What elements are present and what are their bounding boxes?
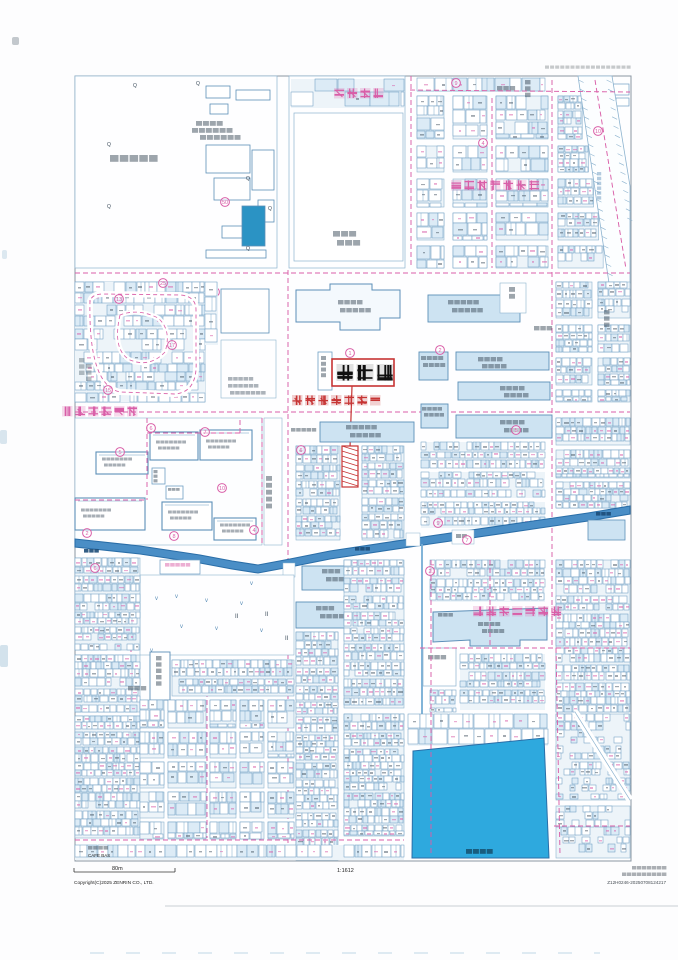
svg-text:50: 50 xyxy=(222,200,228,206)
svg-text:7: 7 xyxy=(465,538,468,544)
svg-text:9: 9 xyxy=(454,81,457,87)
svg-text:13: 13 xyxy=(116,297,122,303)
svg-text:4: 4 xyxy=(481,141,484,147)
svg-text:II: II xyxy=(265,612,269,618)
svg-text:v: v xyxy=(175,594,178,600)
svg-text:1:1612: 1:1612 xyxy=(337,868,354,874)
svg-text:II: II xyxy=(285,636,289,642)
svg-text:80m: 80m xyxy=(112,866,123,872)
svg-text:Q: Q xyxy=(246,246,250,252)
svg-text:Q: Q xyxy=(196,81,200,87)
svg-text:Q: Q xyxy=(107,204,111,210)
svg-text:10: 10 xyxy=(219,486,225,492)
svg-text:Q: Q xyxy=(133,83,137,89)
svg-text:v: v xyxy=(155,596,158,602)
svg-text:Q: Q xyxy=(246,176,250,182)
svg-text:CAFE BAS: CAFE BAS xyxy=(88,853,110,858)
svg-text:5: 5 xyxy=(118,450,121,456)
svg-text:25: 25 xyxy=(160,281,166,287)
svg-text:v: v xyxy=(250,581,253,587)
svg-text:5: 5 xyxy=(514,428,517,434)
svg-text:2: 2 xyxy=(428,569,431,575)
svg-text:v: v xyxy=(240,601,243,607)
svg-text:8: 8 xyxy=(172,534,175,540)
svg-text:9: 9 xyxy=(436,521,439,527)
svg-text:4: 4 xyxy=(252,528,255,534)
svg-text:10: 10 xyxy=(595,129,601,135)
svg-text:6: 6 xyxy=(93,566,96,572)
svg-text:2: 2 xyxy=(85,531,88,537)
svg-text:v: v xyxy=(180,624,183,630)
svg-text:6: 6 xyxy=(299,448,302,454)
svg-text:Q: Q xyxy=(107,142,111,148)
svg-text:v: v xyxy=(205,598,208,604)
svg-text:Q: Q xyxy=(268,206,272,212)
svg-text:Copyright(C)2025 ZENRIN CO., L: Copyright(C)2025 ZENRIN CO., LTD. xyxy=(74,880,154,886)
svg-text:v: v xyxy=(260,628,263,634)
svg-text:Z12H0246-20250708124217: Z12H0246-20250708124217 xyxy=(607,880,666,885)
svg-text:v: v xyxy=(215,626,218,632)
svg-text:2: 2 xyxy=(438,348,441,354)
svg-text:II: II xyxy=(235,614,239,620)
svg-text:17: 17 xyxy=(169,343,175,349)
svg-text:1: 1 xyxy=(348,351,351,357)
svg-text:7: 7 xyxy=(203,430,206,436)
svg-text:6: 6 xyxy=(149,426,152,432)
svg-text:15: 15 xyxy=(105,388,111,394)
